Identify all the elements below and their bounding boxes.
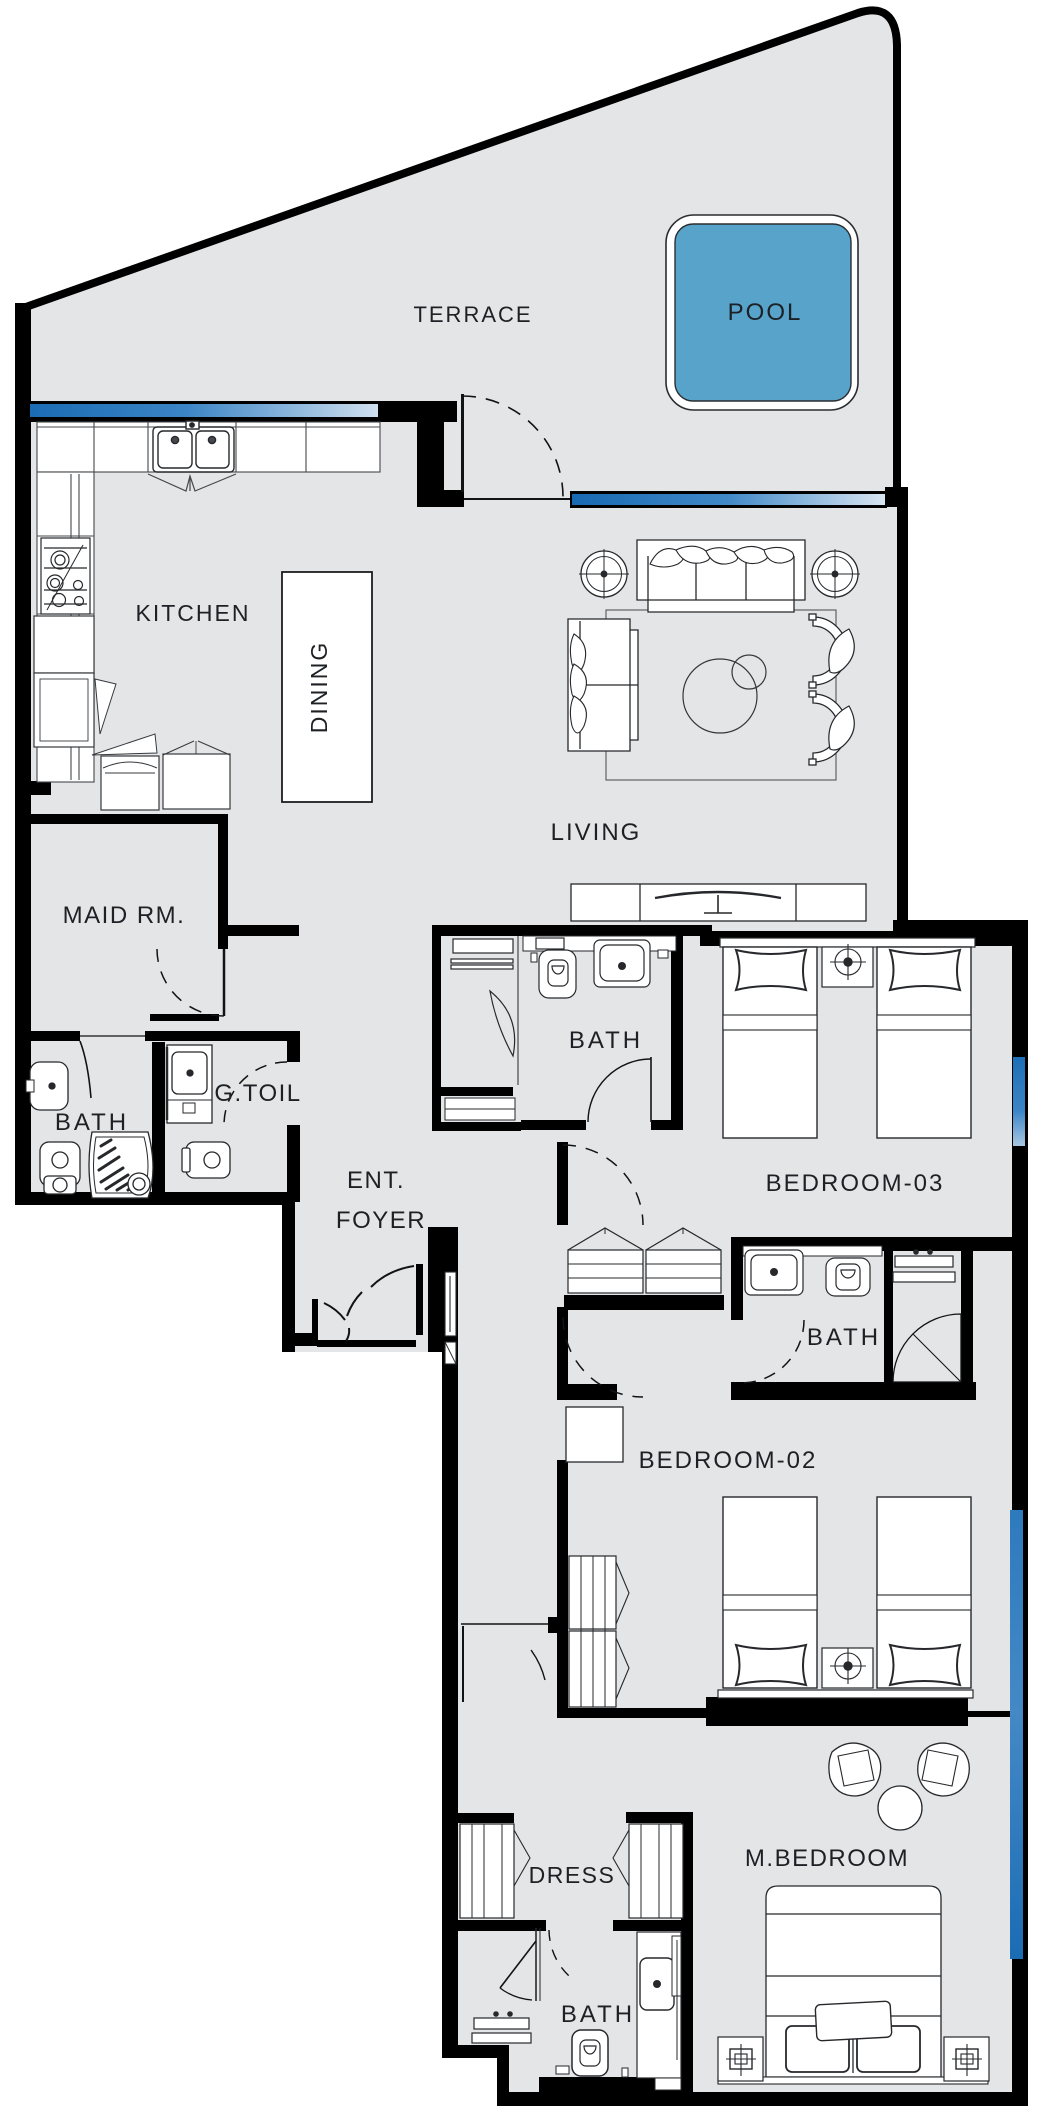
svg-text:BEDROOM-02: BEDROOM-02 xyxy=(639,1447,818,1474)
svg-text:TERRACE: TERRACE xyxy=(413,302,532,327)
svg-text:BEDROOM-03: BEDROOM-03 xyxy=(766,1170,945,1197)
svg-text:BATH: BATH xyxy=(569,1027,643,1054)
svg-text:LIVING: LIVING xyxy=(551,819,642,846)
svg-text:KITCHEN: KITCHEN xyxy=(136,600,251,626)
svg-text:BATH: BATH xyxy=(561,2001,635,2028)
svg-text:M.BEDROOM: M.BEDROOM xyxy=(745,1845,909,1872)
svg-text:DINING: DINING xyxy=(306,641,332,734)
svg-text:BATH: BATH xyxy=(807,1324,881,1351)
svg-text:ENT.: ENT. xyxy=(347,1167,405,1194)
svg-text:FOYER: FOYER xyxy=(336,1207,426,1234)
svg-text:G.TOIL: G.TOIL xyxy=(214,1080,301,1107)
svg-text:DRESS: DRESS xyxy=(529,1862,616,1888)
svg-text:BATH: BATH xyxy=(55,1109,129,1136)
svg-text:MAID RM.: MAID RM. xyxy=(63,902,186,929)
svg-text:POOL: POOL xyxy=(728,299,803,326)
